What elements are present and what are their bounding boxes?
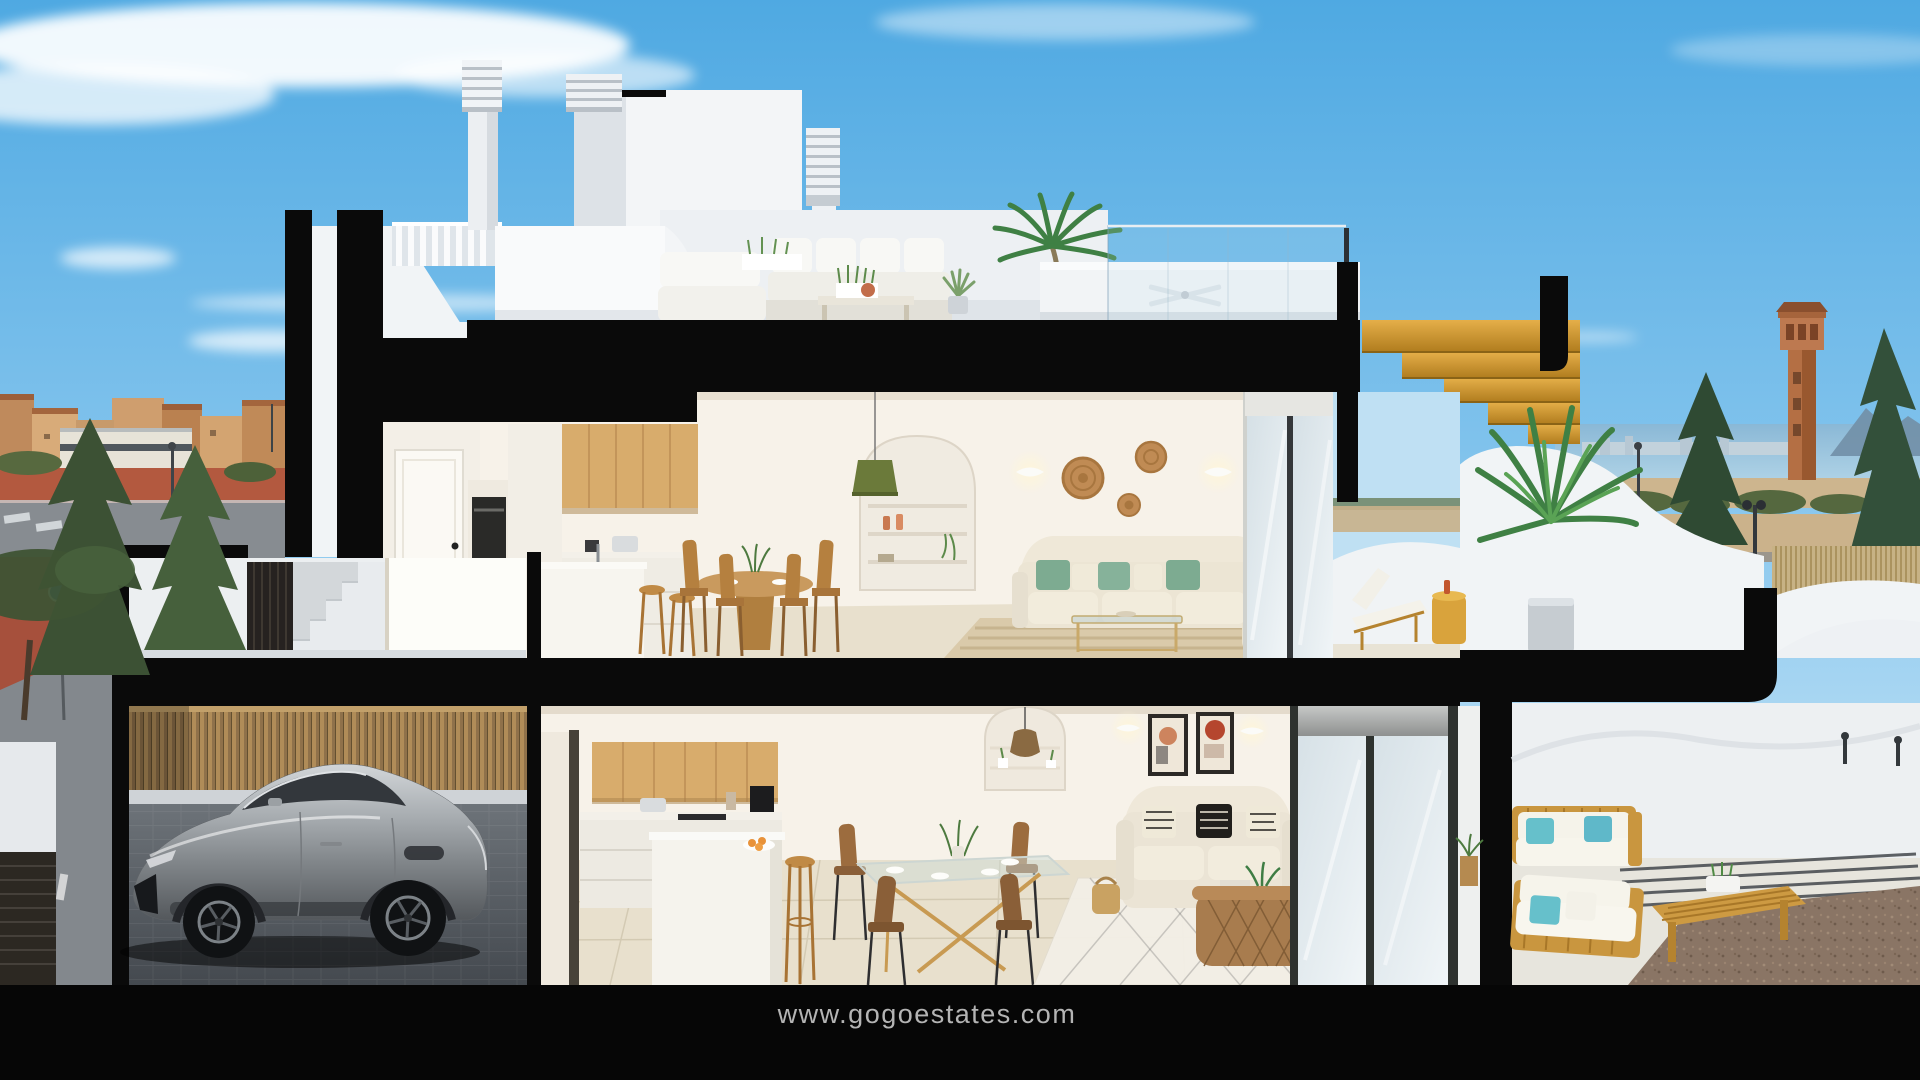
watermark-bar: www.gogoestates.com: [0, 985, 1920, 1080]
terrace-fin: [1337, 262, 1358, 502]
neighbor-garage-door: [0, 852, 56, 985]
lower-kitchen-island: [652, 840, 782, 985]
patio-sofa-set: [1510, 806, 1645, 958]
green-pendant-lamp: [852, 460, 898, 496]
upper-wood-cabinets: [562, 424, 698, 508]
render-scene: [0, 0, 1920, 985]
hob: [678, 814, 726, 820]
kitchen-island: [540, 569, 644, 658]
coffee-machine: [750, 786, 774, 812]
stair-fin: [1540, 276, 1568, 371]
car-mirror: [268, 798, 282, 806]
lower-sliding-doors: [1290, 706, 1483, 985]
chimney-left: [462, 60, 502, 230]
watermark-url: www.gogoestates.com: [778, 999, 1077, 1030]
upper-sliding-doors: [1243, 392, 1337, 658]
lower-floor: [541, 706, 1483, 985]
town-background-left: [0, 394, 285, 560]
glass-railing: [1108, 226, 1349, 322]
arch-niche-lower: [985, 707, 1065, 790]
mid-floor-slab-cut: [112, 658, 1460, 706]
cutaway-house-render: www.gogoestates.com: [0, 0, 1920, 1080]
car-rear-wheel: [370, 880, 446, 956]
door-handle: [452, 543, 459, 550]
terracotta-vase: [861, 283, 875, 297]
wicker-pendant: [1010, 729, 1040, 757]
chimney-center: [566, 74, 622, 232]
car-front-wheel: [183, 886, 255, 958]
penthouse-box: [495, 226, 665, 322]
